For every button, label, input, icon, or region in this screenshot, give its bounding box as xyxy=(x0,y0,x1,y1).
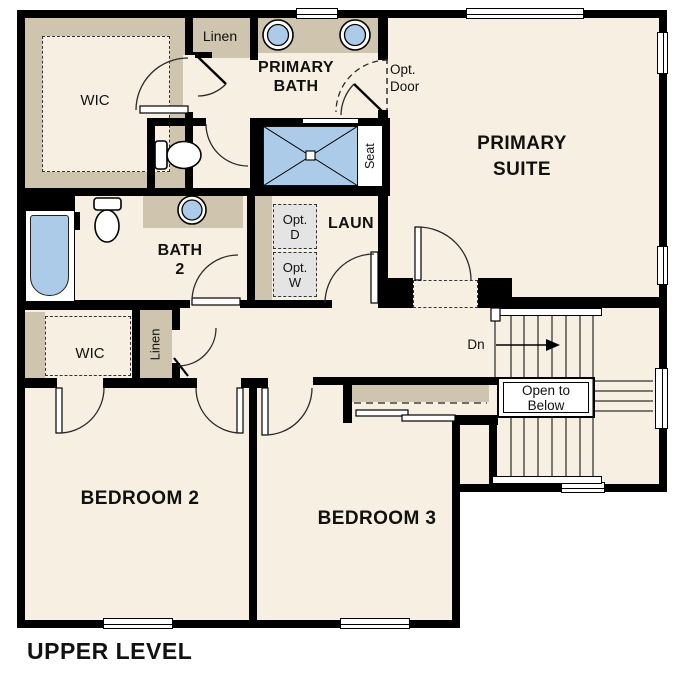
door-bedroom2 xyxy=(196,388,243,433)
bedroom2-label: BEDROOM 2 xyxy=(50,488,230,510)
stairs-down-label: Dn xyxy=(462,337,490,353)
door-wic1 xyxy=(136,58,188,113)
closet-bypass-doors xyxy=(356,410,455,421)
laundry-label: LAUN xyxy=(322,215,380,233)
stair-rail-left xyxy=(491,308,500,377)
toilet-icon xyxy=(94,141,201,242)
page-title: UPPER LEVEL xyxy=(27,638,192,664)
open-to-below-label: Open to Below xyxy=(503,383,589,413)
door-primary-suite xyxy=(415,227,471,280)
linen2-label: Linen xyxy=(149,322,164,366)
linen1-label: Linen xyxy=(190,28,250,44)
opt-door-label: Opt. Door xyxy=(390,61,436,95)
open-below-railing xyxy=(595,381,653,411)
door-bedroom3 xyxy=(262,388,312,435)
wic1-label: WIC xyxy=(60,92,130,109)
door-laundry xyxy=(325,252,378,303)
door-wic2 xyxy=(56,388,104,433)
seat-label: Seat xyxy=(363,136,377,176)
stairs-down-arrow xyxy=(496,339,560,351)
primary-bath-label: PRIMARY BATH xyxy=(240,58,352,96)
bedroom3-label: BEDROOM 3 xyxy=(287,508,467,530)
door-linen1 xyxy=(198,57,226,96)
primary-suite-label: PRIMARY SUITE xyxy=(432,131,612,183)
bath2-label: BATH 2 xyxy=(145,241,215,279)
floor-plan: Opt. D Opt. W xyxy=(0,0,687,687)
sink-icon xyxy=(178,20,370,224)
wic2-label: WIC xyxy=(55,345,125,362)
door-wc xyxy=(206,124,248,166)
door-linen2 xyxy=(174,328,216,376)
shower-glass-lines xyxy=(263,126,358,186)
